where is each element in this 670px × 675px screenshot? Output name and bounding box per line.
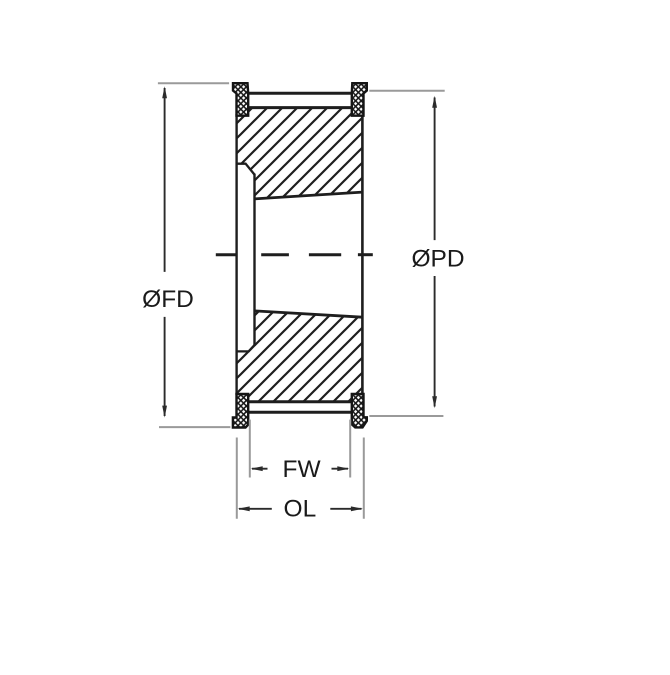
- svg-text:OL: OL: [284, 495, 317, 522]
- svg-text:FW: FW: [283, 456, 322, 483]
- svg-text:ØPD: ØPD: [411, 245, 464, 272]
- svg-text:ØFD: ØFD: [142, 286, 194, 313]
